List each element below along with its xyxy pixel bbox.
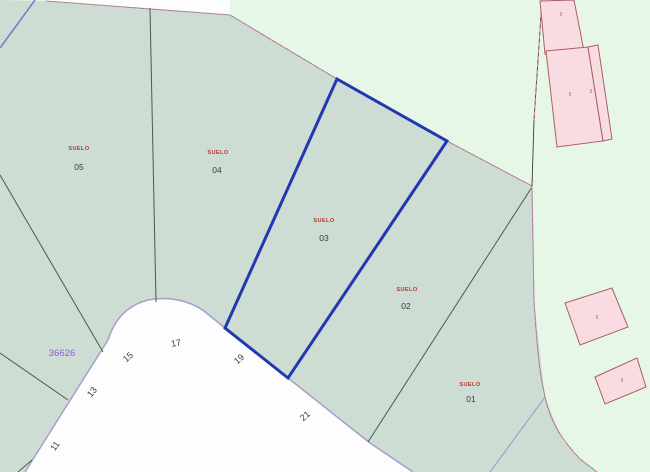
building-4-floors-label: I — [596, 315, 598, 321]
building-3-floors-label: I — [590, 89, 592, 95]
cadastral-map-viewport: SUELO 05 SUELO 04 SUELO 03 SUELO 02 SUEL… — [0, 0, 650, 472]
parcel-04-number-label: 04 — [212, 165, 222, 175]
street-number-17: 17 — [170, 337, 182, 349]
parcel-05-number-label: 05 — [74, 162, 84, 172]
parcel-03-number-label: 03 — [319, 233, 329, 243]
building-2-floors-label: I — [569, 92, 571, 98]
parcel-04-landuse-label: SUELO — [207, 150, 229, 156]
reference-number-label: 36626 — [49, 348, 75, 359]
parcel-03-landuse-label: SUELO — [313, 218, 335, 224]
parcel-01-number-label: 01 — [466, 394, 476, 404]
parcel-05-landuse-label: SUELO — [68, 146, 90, 152]
building-1-floors-label: I — [560, 12, 562, 18]
parcel-02-number-label: 02 — [401, 301, 411, 311]
parcel-01-landuse-label: SUELO — [459, 382, 481, 388]
cadastral-map-svg: SUELO 05 SUELO 04 SUELO 03 SUELO 02 SUEL… — [0, 0, 650, 472]
parcel-02-landuse-label: SUELO — [396, 287, 418, 293]
building-5-floors-label: I — [621, 378, 623, 384]
